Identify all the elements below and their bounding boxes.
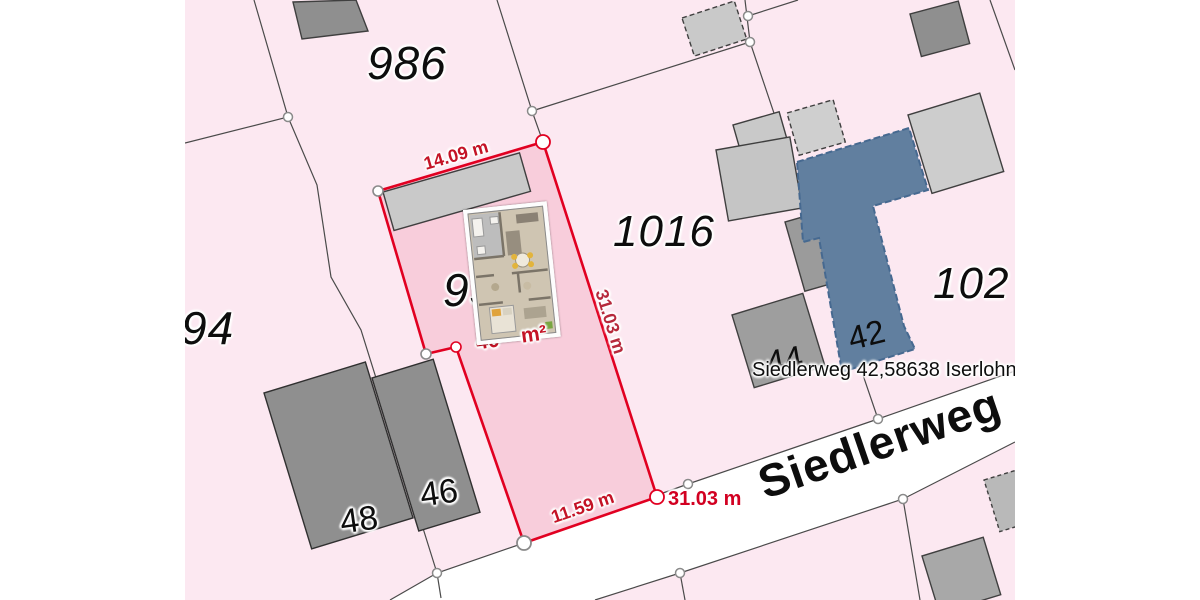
- vertex-handle: [373, 186, 383, 196]
- measurement-corner-total: 31.03 m: [668, 489, 741, 509]
- house-number-46: 46: [418, 474, 460, 513]
- parcel-label-1016: 1016: [613, 210, 715, 254]
- vertex-handle: [517, 536, 531, 550]
- vertex-handle-red: [536, 135, 550, 149]
- floorplan-image[interactable]: [463, 201, 561, 345]
- vertex-handle: [528, 107, 537, 116]
- vertex-handle: [744, 12, 753, 21]
- vertex-handle: [746, 38, 755, 47]
- house-number-42: 42: [845, 314, 889, 355]
- address-tooltip: Siedlerweg 42,58638 Iserlohn: [752, 360, 1015, 380]
- building-light-2[interactable]: [716, 137, 802, 221]
- parcel-label-986: 986: [367, 40, 447, 86]
- vertex-handle: [899, 495, 908, 504]
- vertex-handle: [433, 569, 442, 578]
- vertex-handle-red: [650, 490, 664, 504]
- map-canvas[interactable]: 986 1016 94 102 93 48 46 44 42 40: [185, 0, 1015, 600]
- vertex-handle: [676, 569, 685, 578]
- area-label-right: m²: [520, 322, 548, 346]
- vertex-handle: [284, 113, 293, 122]
- house-number-48: 48: [338, 501, 380, 540]
- parcel-label-102: 102: [933, 262, 1009, 306]
- parcel-label-94: 94: [185, 305, 234, 351]
- vertex-handle-red: [451, 342, 461, 352]
- vertex-handle: [421, 349, 431, 359]
